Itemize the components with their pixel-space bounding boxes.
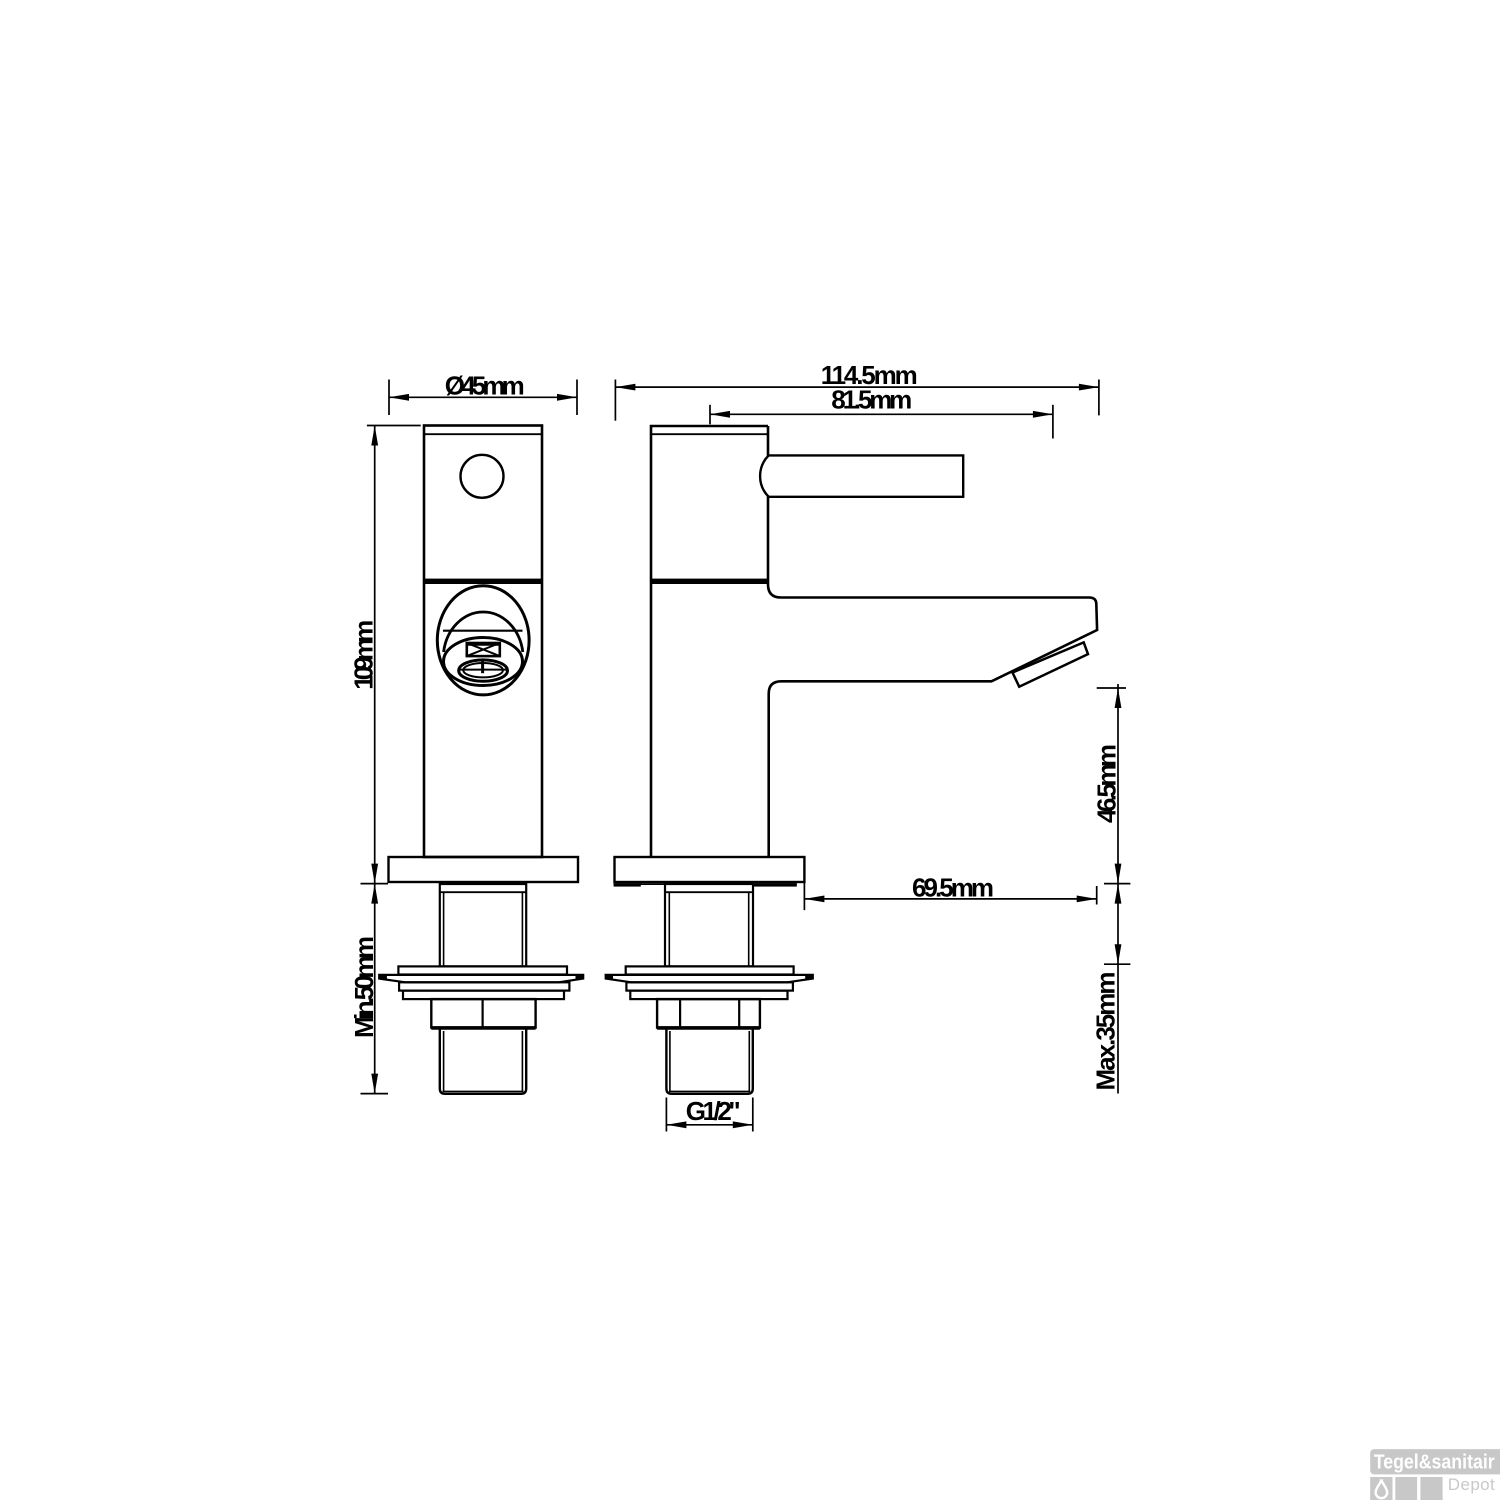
svg-text:Tegel&sanitair: Tegel&sanitair xyxy=(1374,1451,1495,1473)
svg-text:Max.35mm: Max.35mm xyxy=(1090,972,1120,1091)
svg-text:109mm: 109mm xyxy=(349,620,379,690)
svg-text:69.5mm: 69.5mm xyxy=(912,873,994,903)
svg-text:Min.50mm: Min.50mm xyxy=(349,936,379,1038)
svg-text:46.5mm: 46.5mm xyxy=(1092,744,1122,823)
svg-text:G1/2": G1/2" xyxy=(686,1096,741,1126)
svg-text:Depot: Depot xyxy=(1448,1475,1495,1494)
svg-text:Ø45mm: Ø45mm xyxy=(445,371,525,401)
svg-text:81.5mm: 81.5mm xyxy=(831,385,912,415)
